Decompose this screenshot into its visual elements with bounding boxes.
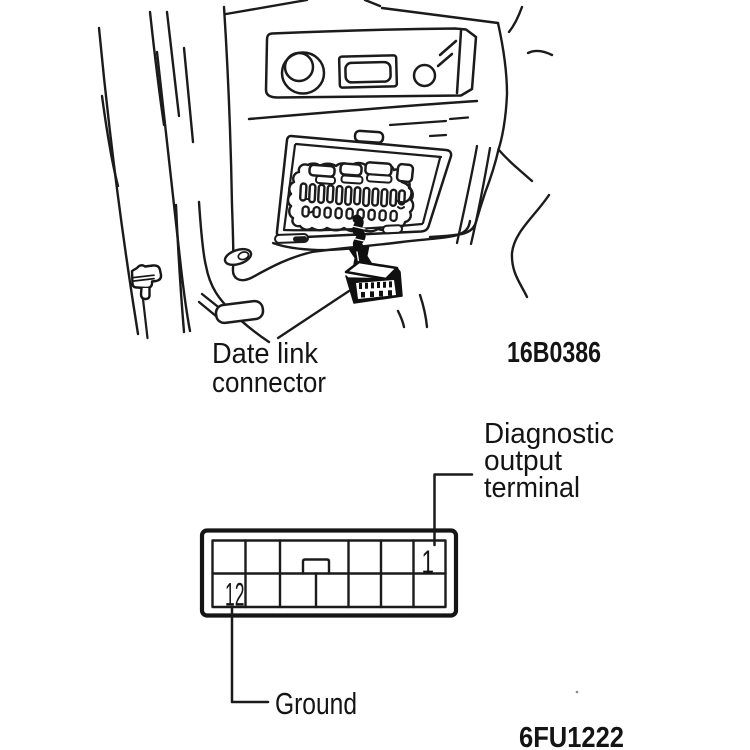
svg-text:connector: connector <box>212 367 326 399</box>
svg-text:6FU1222: 6FU1222 <box>519 722 624 750</box>
svg-text:Ground: Ground <box>275 686 357 721</box>
svg-text:1: 1 <box>422 544 435 580</box>
svg-text:16B0386: 16B0386 <box>507 337 601 369</box>
svg-text:12: 12 <box>225 577 245 613</box>
svg-text:terminal: terminal <box>484 472 580 504</box>
svg-text:Date link: Date link <box>212 338 318 370</box>
